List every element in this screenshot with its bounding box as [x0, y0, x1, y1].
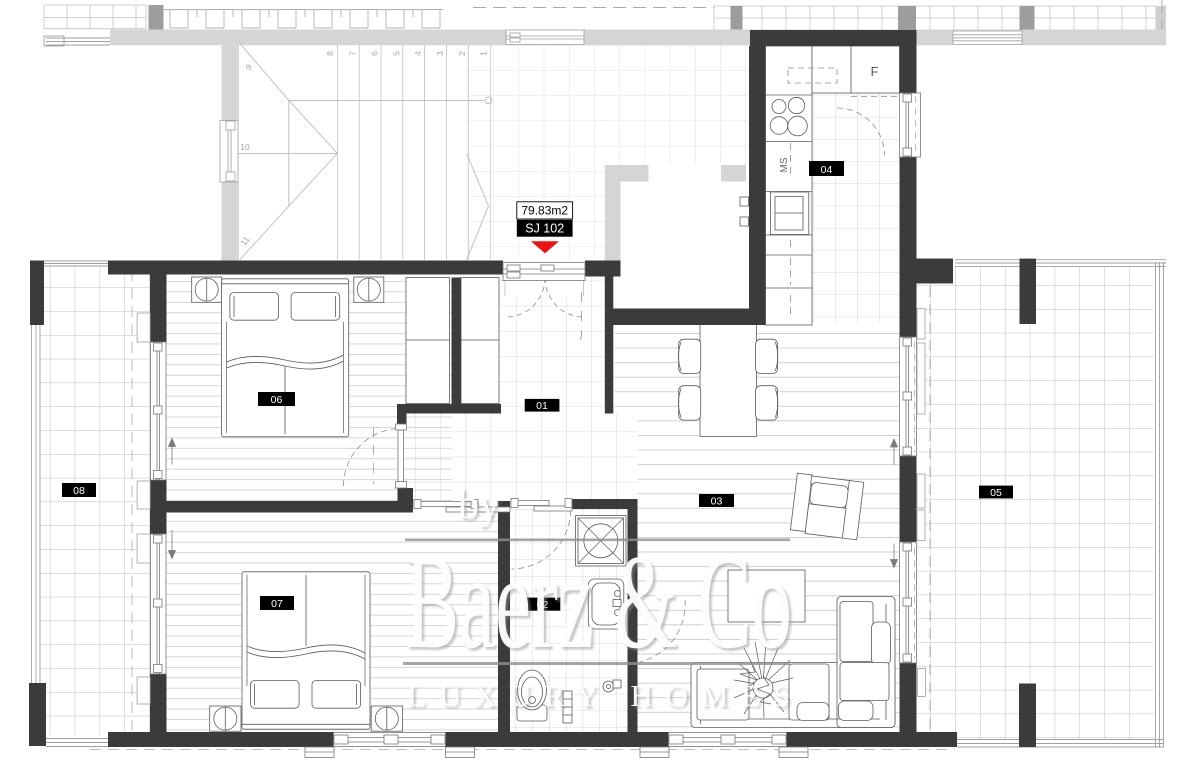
- svg-text:06: 06: [271, 394, 283, 406]
- svg-text:1: 1: [479, 51, 489, 56]
- svg-text:7: 7: [348, 51, 358, 56]
- svg-text:Baerz & Co: Baerz & Co: [405, 528, 792, 677]
- svg-text:01: 01: [536, 400, 548, 412]
- svg-text:10: 10: [240, 142, 250, 152]
- svg-text:4: 4: [413, 51, 423, 56]
- svg-text:03: 03: [711, 495, 723, 507]
- svg-text:8: 8: [325, 51, 335, 56]
- svg-text:07: 07: [271, 598, 283, 610]
- svg-text:SJ 102: SJ 102: [525, 222, 564, 236]
- svg-text:6: 6: [370, 51, 380, 56]
- svg-text:04: 04: [821, 164, 833, 176]
- svg-text:3: 3: [435, 51, 445, 56]
- svg-text:by: by: [458, 482, 500, 528]
- svg-text:2: 2: [457, 51, 467, 56]
- svg-text:F: F: [871, 65, 879, 79]
- svg-text:79.83m2: 79.83m2: [521, 204, 568, 218]
- svg-text:05: 05: [990, 487, 1002, 499]
- svg-text:MS: MS: [779, 157, 790, 172]
- svg-text:5: 5: [391, 51, 401, 56]
- svg-text:08: 08: [73, 485, 85, 497]
